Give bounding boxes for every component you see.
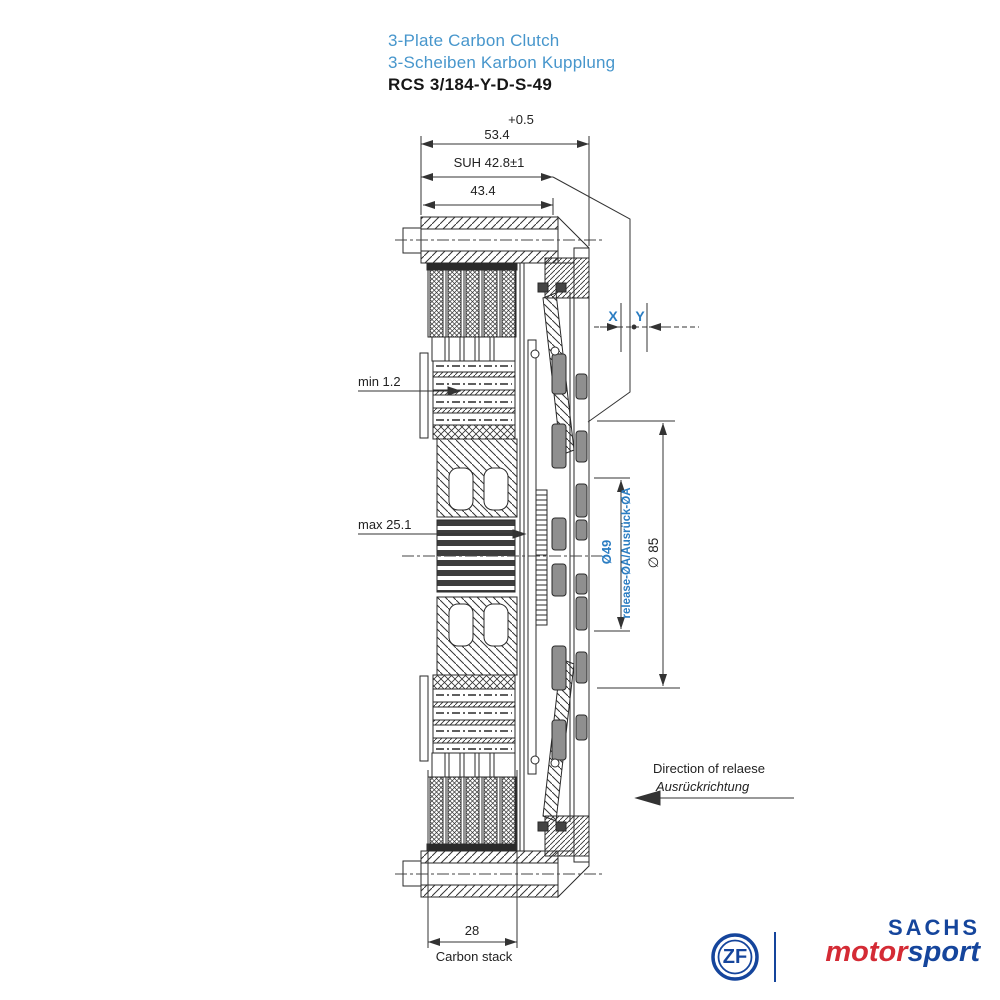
motorsport-wordmark: motorsport xyxy=(770,936,980,969)
motorsport-sport: sport xyxy=(908,936,981,968)
carbon-stack-bottom xyxy=(428,777,516,844)
dim-min-wear: min 1.2 xyxy=(358,374,401,389)
dim-release-label: release-ØA/Ausrück-ØA xyxy=(621,448,635,658)
dim-overall-depth: 53.4 xyxy=(467,127,527,142)
clutch-cross-section-drawing xyxy=(0,0,1000,1000)
clutch-body xyxy=(403,217,589,897)
dim-stack-width: 28 xyxy=(442,923,502,938)
dim-outer-dia: ∅ 85 xyxy=(646,523,662,583)
hub-web-upper xyxy=(437,439,517,517)
drawing-sheet: 3-Plate Carbon Clutch 3-Scheiben Karbon … xyxy=(0,0,1000,1000)
dim-x-label: X xyxy=(598,308,628,324)
zf-logo-text: ZF xyxy=(719,946,751,969)
release-direction-en: Direction of relaese xyxy=(653,761,765,776)
plate-pack-upper xyxy=(433,361,515,439)
title-line2: 3-Scheiben Karbon Kupplung xyxy=(388,53,615,73)
motorsport-motor: motor xyxy=(825,936,907,968)
hub-web-lower xyxy=(437,597,517,675)
dim-release-dia: Ø49 xyxy=(599,522,615,582)
part-number: RCS 3/184-Y-D-S-49 xyxy=(388,75,552,95)
dim-y-label: Y xyxy=(625,308,655,324)
dim-max-stack: max 25.1 xyxy=(358,517,411,532)
dim-tolerance: +0.5 xyxy=(491,112,551,127)
left-tab-lower xyxy=(420,676,428,761)
carbon-stack-caption: Carbon stack xyxy=(404,949,544,964)
plate-pack-lower xyxy=(433,675,515,753)
dim-cover-depth: 43.4 xyxy=(453,183,513,198)
left-tab-upper xyxy=(420,353,428,438)
title-line1: 3-Plate Carbon Clutch xyxy=(388,31,559,51)
release-direction-de: Ausrückrichtung xyxy=(656,779,749,794)
carbon-stack-top xyxy=(428,270,516,337)
dim-suh: SUH 42.8±1 xyxy=(424,155,554,170)
